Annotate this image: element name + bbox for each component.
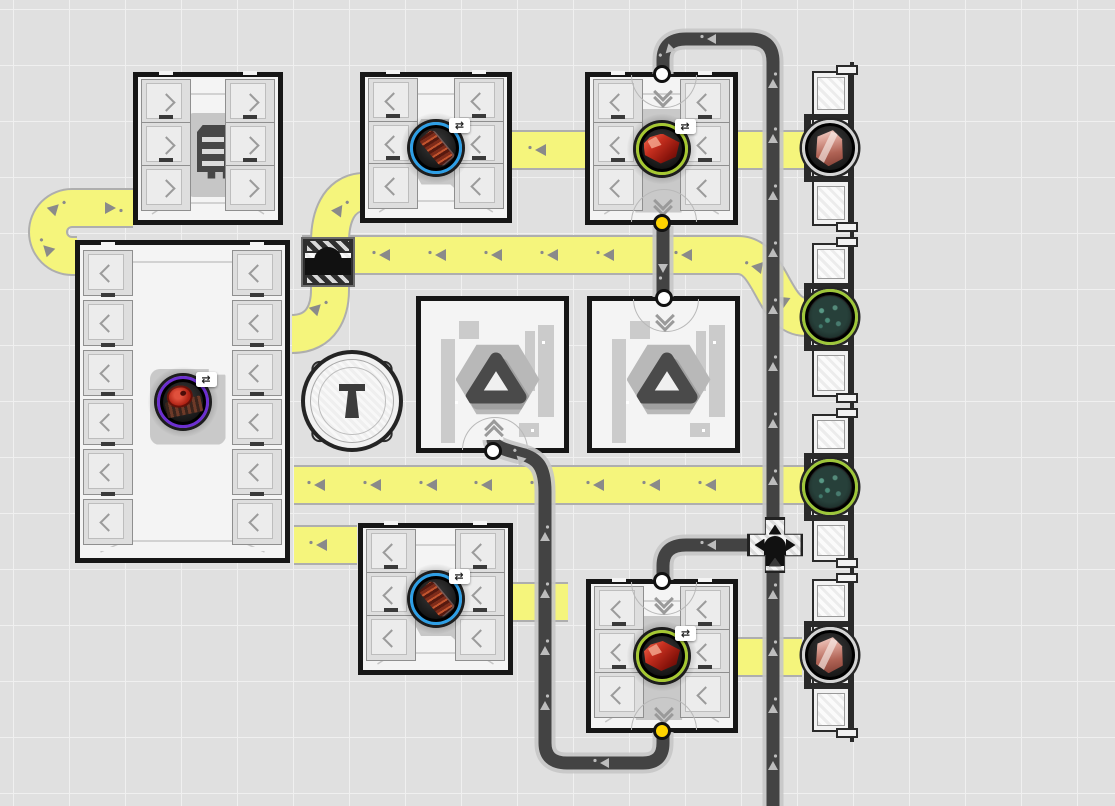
road-main-east[interactable] [663,39,773,806]
port-node-white[interactable] [484,442,502,460]
port-node-white[interactable] [653,572,671,590]
road-junction-branch[interactable] [663,545,747,580]
junction-arrow-up-icon [769,525,782,535]
road-south-loop[interactable] [493,440,663,763]
port-node-white[interactable] [653,65,671,83]
junction-arrow-left-icon [755,539,765,552]
port-node-white[interactable] [655,289,673,307]
factory-scene: ⇄⇄⇄⇄⇄ [0,0,1115,806]
junction-arrow-right-icon [786,539,796,552]
port-node-yellow[interactable] [653,722,671,740]
road-south-loop-edge [493,440,663,763]
road-layer [0,0,1115,806]
port-node-yellow[interactable] [653,214,671,232]
road-main-east-edge [663,39,773,806]
